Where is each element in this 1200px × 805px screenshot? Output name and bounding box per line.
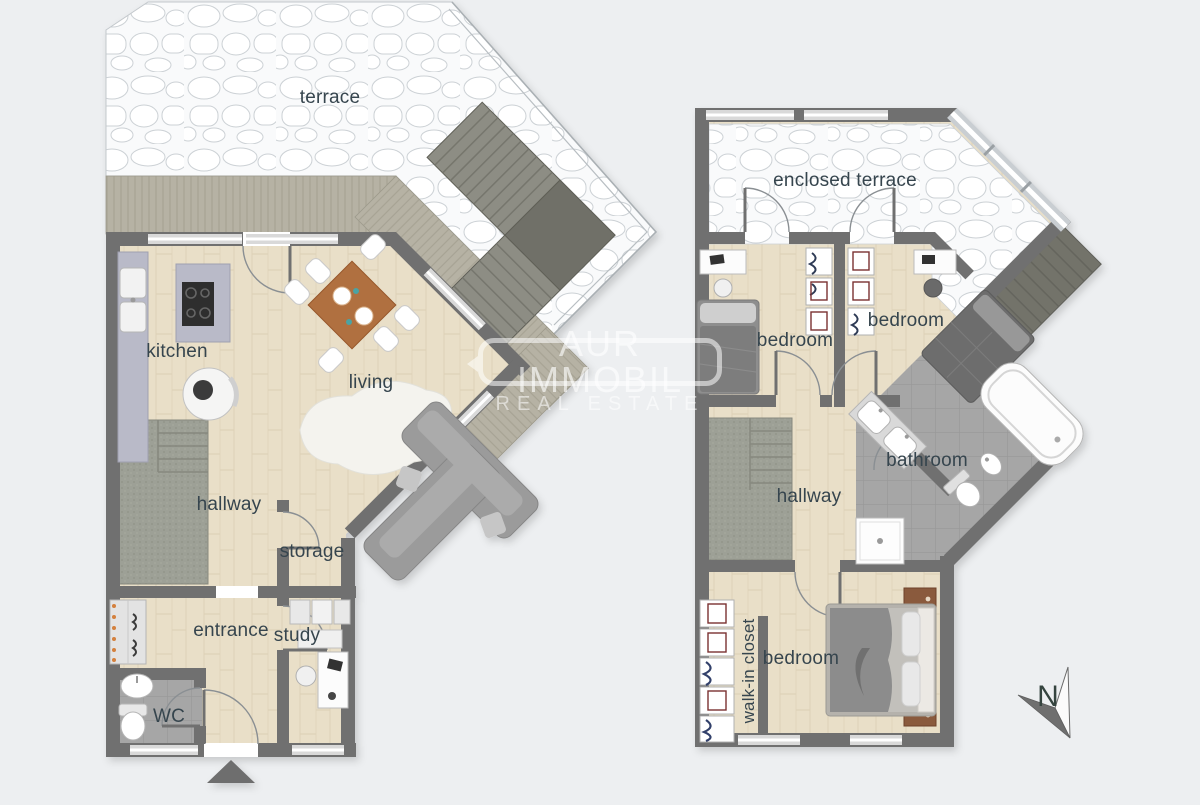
toilet-icon [119, 704, 147, 740]
walk-in-closet-furniture [700, 600, 734, 742]
room-label-bedroom-main: bedroom [763, 648, 839, 670]
floorplan-graphic [0, 0, 1200, 800]
room-label-walk-in-closet: walk-in closet [739, 619, 759, 724]
compass-north-label: N [1037, 680, 1059, 714]
double-bed-icon [826, 604, 936, 716]
room-label-bedroom-middle: bedroom [868, 310, 944, 332]
entrance-arrow-icon [207, 760, 255, 783]
wardrobe-icon [110, 600, 146, 664]
room-label-bedroom-front: bedroom [757, 330, 833, 352]
room-label-enclosed-terrace: enclosed terrace [773, 170, 917, 192]
room-label-study: study [274, 625, 320, 647]
room-label-hallway-uf: hallway [777, 486, 842, 508]
room-label-hallway-gf: hallway [197, 494, 262, 516]
bedroom-main-furniture [826, 588, 936, 726]
floorplan-sheet: terrace kitchen living hallway storage e… [0, 0, 1200, 800]
bed-icon [697, 300, 759, 394]
room-label-living: living [349, 372, 394, 394]
room-label-terrace: terrace [300, 87, 361, 109]
cooktop-island-icon [176, 264, 230, 342]
sink-icon [121, 674, 153, 698]
room-label-wc: WC [153, 706, 185, 728]
room-label-storage: storage [280, 541, 345, 563]
room-label-bathroom: bathroom [886, 450, 968, 472]
shower-icon [856, 518, 904, 564]
room-label-kitchen: kitchen [146, 341, 208, 363]
kitchen-counter-icon [118, 252, 148, 462]
room-label-entrance: entrance [193, 620, 269, 642]
